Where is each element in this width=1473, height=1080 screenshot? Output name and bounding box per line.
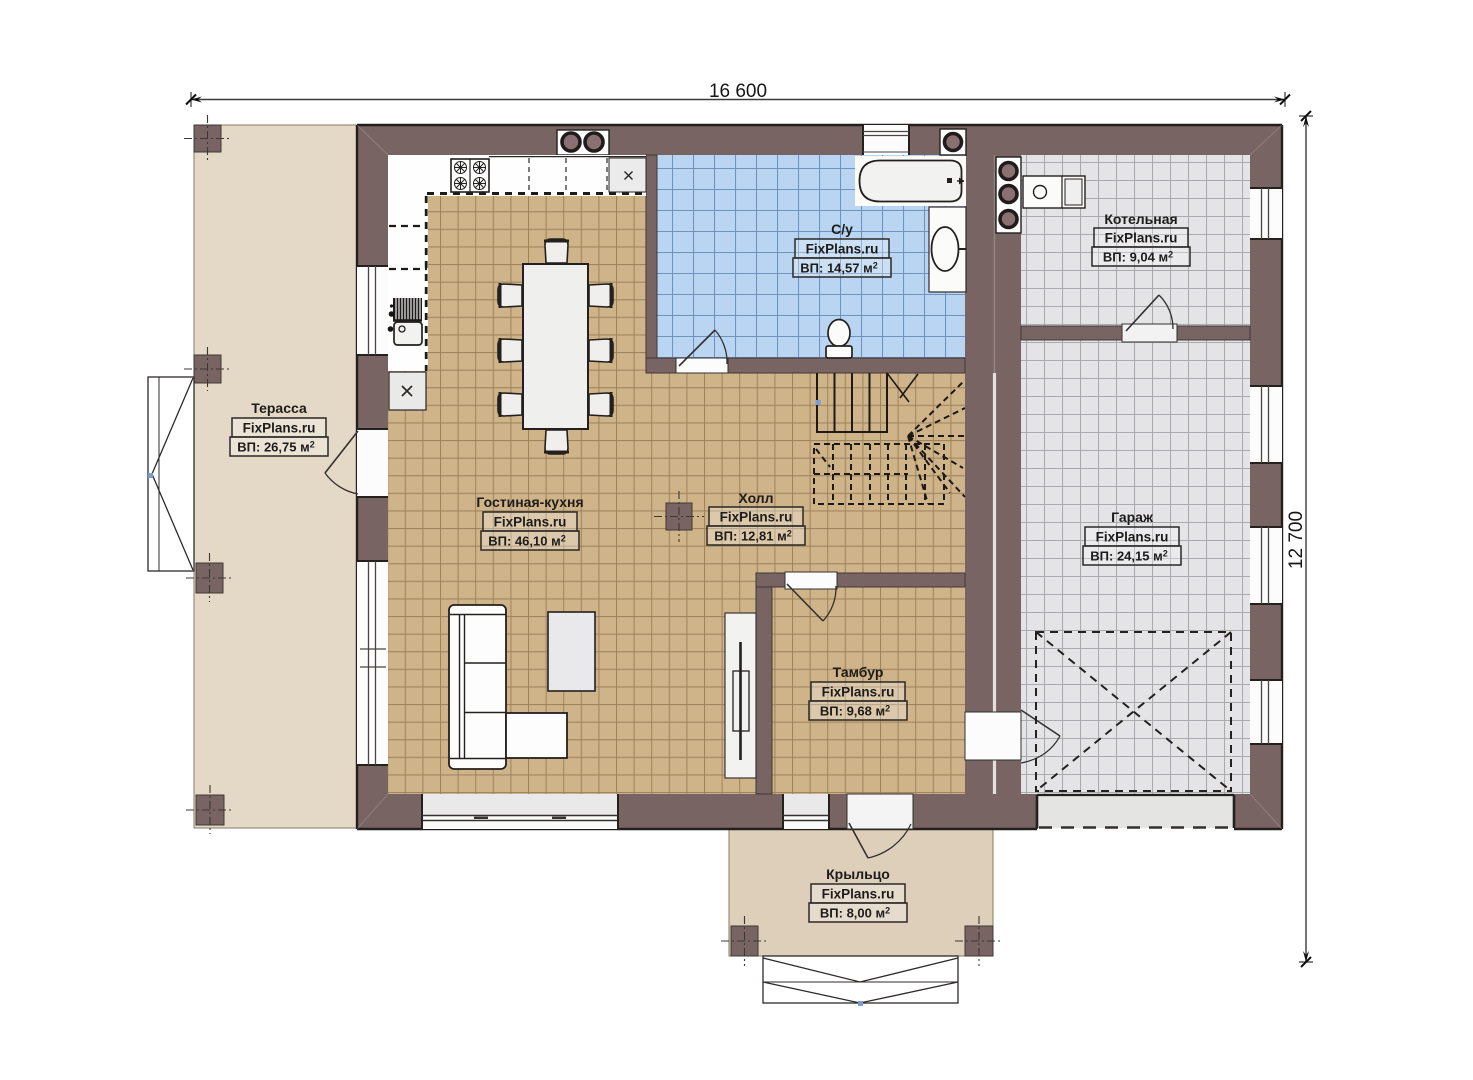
svg-text:ВП: 9,04 м2: ВП: 9,04 м2	[1103, 250, 1173, 265]
svg-text:ВП: 14,57 м2: ВП: 14,57 м2	[800, 261, 877, 276]
svg-text:ВП: 24,15 м2: ВП: 24,15 м2	[1090, 549, 1167, 564]
svg-text:12 700: 12 700	[1286, 511, 1307, 569]
svg-text:ВП: 12,81 м2: ВП: 12,81 м2	[714, 529, 791, 544]
svg-text:С/у: С/у	[831, 221, 853, 237]
svg-text:ВП: 8,00 м2: ВП: 8,00 м2	[820, 906, 890, 921]
svg-text:Терасса: Терасса	[251, 400, 307, 416]
svg-text:FixPlans.ru: FixPlans.ru	[1105, 231, 1178, 246]
svg-text:FixPlans.ru: FixPlans.ru	[806, 242, 879, 257]
svg-text:FixPlans.ru: FixPlans.ru	[494, 515, 567, 530]
svg-text:ВП: 46,10 м2: ВП: 46,10 м2	[488, 534, 565, 549]
svg-text:FixPlans.ru: FixPlans.ru	[822, 685, 895, 700]
svg-text:16 600: 16 600	[709, 81, 767, 102]
svg-text:FixPlans.ru: FixPlans.ru	[822, 887, 895, 902]
svg-text:FixPlans.ru: FixPlans.ru	[243, 421, 316, 436]
svg-text:Холл: Холл	[738, 490, 773, 506]
svg-text:Гостиная-кухня: Гостиная-кухня	[476, 494, 583, 510]
svg-text:Гараж: Гараж	[1111, 509, 1154, 525]
svg-text:FixPlans.ru: FixPlans.ru	[720, 510, 793, 525]
svg-text:Котельная: Котельная	[1104, 211, 1177, 227]
svg-text:Тамбур: Тамбур	[833, 664, 884, 680]
svg-text:ВП: 9,68 м2: ВП: 9,68 м2	[820, 704, 890, 719]
svg-text:ВП: 26,75 м2: ВП: 26,75 м2	[237, 440, 314, 455]
svg-text:Крыльцо: Крыльцо	[826, 866, 890, 882]
svg-text:FixPlans.ru: FixPlans.ru	[1096, 530, 1169, 545]
